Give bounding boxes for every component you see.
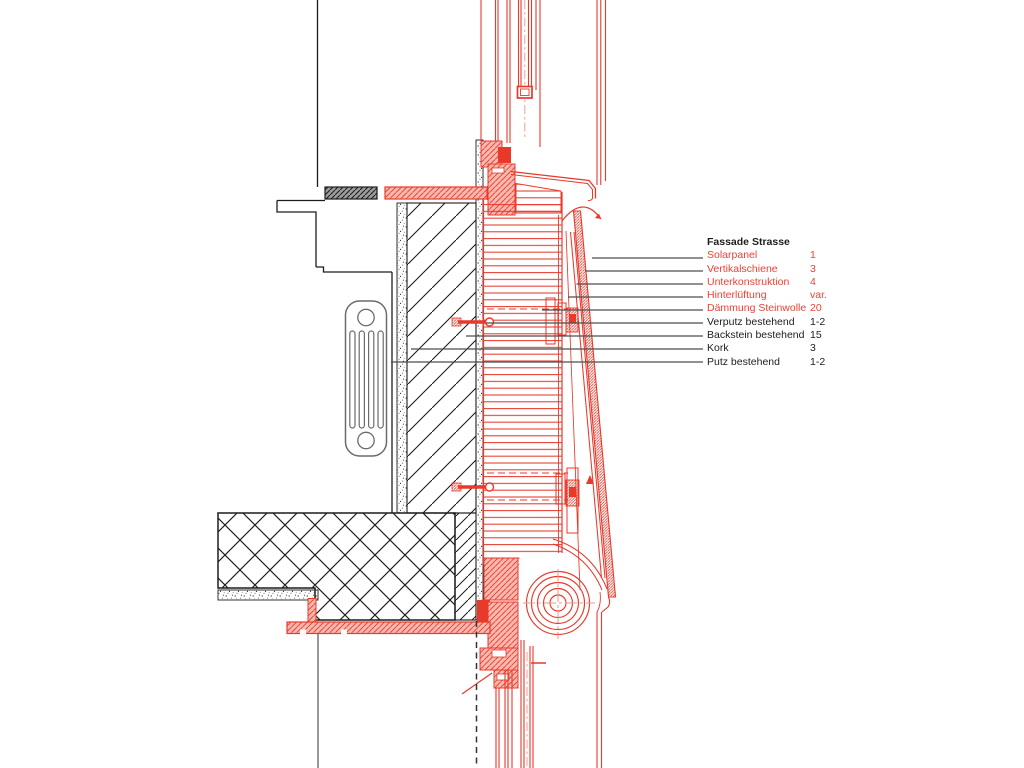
legend-item-value: 15 — [810, 329, 822, 342]
legend-item-value: var. — [810, 289, 827, 302]
facade-section-drawing — [0, 0, 1024, 768]
legend-item: Dämmung Steinwolle 20 — [707, 302, 847, 315]
material-legend: Fassade Strasse Solarpanel 1 Vertikalsch… — [707, 236, 847, 369]
legend-item: Backstein bestehend 15 — [707, 329, 847, 342]
legend-item-value: 1-2 — [810, 316, 825, 329]
legend-item-label: Putz bestehend — [707, 356, 780, 369]
legend-item: Kork 3 — [707, 342, 847, 355]
cork-layer — [397, 203, 407, 513]
legend-item-label: Kork — [707, 342, 729, 355]
legend-item-value: 1 — [810, 249, 816, 262]
legend-item: Solarpanel 1 — [707, 249, 847, 262]
legend-item-label: Solarpanel — [707, 249, 757, 262]
legend-item-label: Verputz bestehend — [707, 316, 795, 329]
radiator — [346, 301, 387, 456]
legend-item: Putz bestehend 1-2 — [707, 356, 847, 369]
legend-item-label: Vertikalschiene — [707, 263, 778, 276]
legend-item-value: 4 — [810, 276, 816, 289]
legend-item: Verputz bestehend 1-2 — [707, 316, 847, 329]
legend-item: Unterkonstruktion 4 — [707, 276, 847, 289]
glass-spacer — [518, 87, 533, 99]
legend-title: Fassade Strasse — [707, 236, 847, 249]
ventilation-cavity-line — [566, 231, 580, 590]
solar-panel — [574, 211, 616, 597]
legend-item: Vertikalschiene 3 — [707, 263, 847, 276]
brick-layer — [407, 203, 476, 513]
legend-item-label: Backstein bestehend — [707, 329, 804, 342]
legend-item-value: 3 — [810, 263, 816, 276]
legend-item-label: Dämmung Steinwolle — [707, 302, 806, 315]
legend-item: Hinterlüftung var. — [707, 289, 847, 302]
legend-item-value: 3 — [810, 342, 816, 355]
roller-blind-drum — [523, 569, 595, 639]
legend-item-label: Hinterlüftung — [707, 289, 767, 302]
ceiling-plaster-band — [218, 590, 318, 600]
legend-item-value: 20 — [810, 302, 822, 315]
render-layer — [476, 140, 483, 620]
legend-item-value: 1-2 — [810, 356, 825, 369]
rockwool-insulation — [484, 192, 563, 565]
legend-item-label: Unterkonstruktion — [707, 276, 789, 289]
concrete-floor-slab — [218, 513, 455, 768]
drawing-sheet: Fassade Strasse Solarpanel 1 Vertikalsch… — [0, 0, 1024, 768]
